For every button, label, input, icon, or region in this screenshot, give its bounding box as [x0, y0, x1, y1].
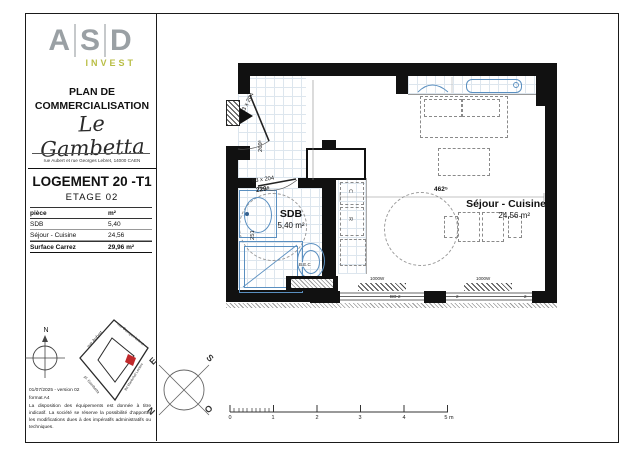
wall	[238, 63, 557, 76]
total-label: Surface Carrez	[30, 244, 108, 251]
document-title: PLAN DE COMMERCIALISATION	[28, 86, 156, 113]
appliance-box	[340, 239, 366, 266]
unit-title: LOGEMENT 20 -T1	[28, 174, 156, 189]
scale-tick-label: 2	[309, 415, 325, 421]
kitchen-tall-unit	[306, 148, 366, 180]
street-label: rue Aubert	[86, 329, 104, 348]
surface-table-header: pièce m²	[30, 207, 152, 219]
exterior-hatch	[226, 303, 557, 308]
total-value: 29,96 m²	[108, 244, 152, 251]
fridge-label: R	[347, 217, 353, 221]
window-ref-label: 2	[524, 294, 527, 299]
accessibility-circle	[384, 192, 458, 266]
north-compass-icon	[20, 330, 80, 390]
surface-cell: 24,56	[108, 232, 152, 239]
radiator-power-label: 1000W	[476, 276, 490, 281]
table-row: Séjour - Cuisine 24,56	[30, 230, 152, 241]
bed-pillow	[424, 99, 462, 117]
fridge-box	[340, 207, 364, 236]
scale-tick-label: 1	[265, 415, 281, 421]
dining-table-outline	[458, 212, 480, 242]
logo-separator	[74, 24, 76, 57]
room-label-sejour: Séjour - Cuisine	[466, 198, 546, 210]
logo-letters: ASD	[40, 26, 140, 56]
sdb-radiator	[291, 279, 333, 288]
wall	[238, 76, 250, 94]
divider-rule	[32, 153, 150, 154]
radiator	[464, 283, 512, 291]
logo-separator	[104, 24, 106, 57]
disclaimer-text: La disposition des équipements est donné…	[29, 404, 151, 432]
entry-height-dim: 269⁵	[258, 140, 264, 152]
sejour-width-dim: 462⁵	[434, 186, 448, 193]
room-cell: SDB	[30, 221, 108, 228]
street-label: rue Georges Lebret	[117, 322, 146, 346]
coffee-table-outline	[438, 148, 490, 176]
room-area-sejour: 24,56 m²	[498, 211, 530, 220]
room-cell: Séjour - Cuisine	[30, 232, 108, 239]
scale-tick-label: 0	[222, 415, 238, 421]
kitchen-sink	[466, 79, 522, 93]
logo-letter-s: S	[77, 24, 103, 57]
sdb-depth-dim: 251	[250, 230, 256, 240]
surface-cell: 5,40	[108, 221, 152, 228]
radiator-power-label: 1000W	[370, 276, 384, 281]
logo-subtitle: INVEST	[40, 58, 140, 68]
version-block: 01/07/2025 - version 02 format A4	[29, 387, 149, 402]
cooktop-label: C	[347, 189, 353, 193]
plan-sheet: ASD INVEST PLAN DE COMMERCIALISATION Le …	[0, 0, 643, 455]
floor-label: ETAGE 02	[28, 192, 156, 203]
residence-name: Le Gambetta	[27, 110, 157, 162]
wall	[536, 76, 545, 106]
wall	[226, 146, 250, 160]
format-text: format A4	[29, 395, 149, 403]
room-label-sdb: SDB	[266, 208, 316, 220]
room-area-sdb: 5,40 m²	[262, 221, 320, 230]
panel-divider	[156, 13, 157, 441]
scale-tick-label: 5 m	[441, 415, 457, 421]
wall	[226, 146, 238, 302]
window-ref-label: 2	[456, 294, 459, 299]
logo-letter-a: A	[45, 24, 73, 57]
bed-pillow	[462, 99, 500, 117]
col-header-unit: m²	[108, 210, 152, 217]
table-row: SDB 5,40	[30, 219, 152, 230]
window-opening	[340, 291, 424, 303]
version-text: 01/07/2025 - version 02	[29, 387, 149, 395]
wall-hatched	[226, 100, 240, 126]
company-logo: ASD INVEST	[40, 26, 140, 68]
faucet-icon	[245, 212, 249, 216]
residence-address: rue Aubert et rue Georges Lebret, 14000 …	[28, 158, 156, 163]
logo-letter-d: D	[107, 24, 135, 57]
wc-label: B.E.C	[299, 262, 311, 267]
col-header-piece: pièce	[30, 210, 108, 217]
divider-rule-strong	[28, 168, 156, 169]
cooktop-box	[340, 182, 364, 205]
document-title-line1: PLAN DE	[28, 86, 156, 100]
window-ref-label: BO-2	[390, 294, 401, 299]
wall	[545, 63, 557, 303]
radiator	[358, 283, 406, 291]
scale-tick-label: 4	[396, 415, 412, 421]
surface-table: pièce m² SDB 5,40 Séjour - Cuisine 24,56…	[30, 207, 152, 253]
scale-tick-label: 3	[352, 415, 368, 421]
table-total-row: Surface Carrez 29,96 m²	[30, 241, 152, 253]
wall	[396, 76, 408, 94]
